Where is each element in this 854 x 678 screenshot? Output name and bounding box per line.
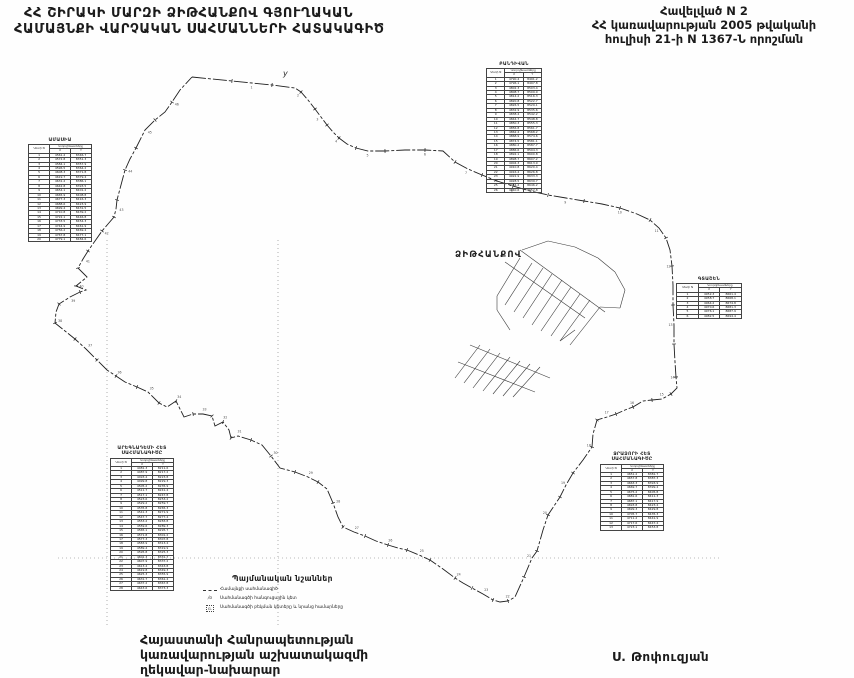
legend-item: /o Սահմանագծի հանգուցային կետ [200, 596, 410, 602]
coord-table: Կետի NԿոորդինատներըXY14952.38661.424958.… [676, 283, 742, 319]
legend-item: G. Սահմանագծի բեկման կետերը և նրանց համա… [200, 605, 410, 612]
svg-text:24: 24 [457, 572, 461, 576]
break-point-symbol: G. [200, 605, 220, 612]
svg-text:27: 27 [355, 526, 359, 530]
coord-table: Կետի NԿոորդինատներըXY14561.28346.724572.… [28, 144, 92, 242]
coord-table-bottom-left: ԱՐԵԳՆԱԴԵՄԻ ՀԵՏ ՍԱՀՄԱՆԱԳԻԾԸԿետի NԿոորդինա… [110, 446, 174, 591]
coord-table-right: ԳՏԱՇԵՆԿետի NԿոորդինատներըXY14952.38661.4… [676, 277, 742, 319]
svg-text:34: 34 [177, 395, 181, 399]
scanned-map-page: ՀՀ ՇԻՐԱԿԻ ՄԱՐԶԻ ՁԻԹՀԱՆՔՈՎ ԳՅՈՒՂԱԿԱՆ ՀԱՄԱ… [0, 0, 854, 678]
svg-text:25: 25 [420, 549, 424, 553]
svg-text:30: 30 [274, 451, 278, 455]
coord-table-bottom-right: ՋՐԱՁՈՐԻ ՀԵՏ ՍԱՀՄԱՆԱԳԻԾԸԿետի NԿոորդինատնե… [600, 452, 664, 531]
coord-table-title: ԱՐԵԳՆԱԴԵՄԻ ՀԵՏ ՍԱՀՄԱՆԱԳԻԾԸ [110, 446, 174, 457]
signer-name: Ս. Թոփուզյան [612, 650, 709, 664]
svg-text:32: 32 [223, 416, 227, 420]
svg-text:33: 33 [202, 408, 206, 412]
svg-text:31: 31 [237, 430, 241, 434]
svg-text:2: 2 [297, 93, 299, 97]
svg-text:13: 13 [669, 323, 673, 327]
svg-text:1: 1 [251, 85, 253, 89]
node-point-symbol: /o [200, 596, 220, 601]
svg-text:7: 7 [465, 171, 467, 175]
signature-line1: Հայաստանի Հանրապետության [140, 632, 368, 647]
svg-text:19: 19 [561, 481, 565, 485]
svg-text:44: 44 [128, 169, 132, 173]
coord-row: 64982.58694.4 [677, 314, 742, 318]
svg-text:5: 5 [367, 153, 369, 157]
legend: Պայմանական նշաններ Համայնքի սահմանագիծ /… [200, 574, 410, 615]
svg-text:46: 46 [175, 103, 179, 107]
svg-text:21: 21 [527, 554, 531, 558]
svg-text:23: 23 [484, 588, 488, 592]
legend-heading: Պայմանական նշաններ [232, 574, 410, 583]
svg-text:9: 9 [564, 200, 566, 204]
coord-row: 134723.18453.8 [601, 526, 664, 530]
svg-text:20: 20 [543, 511, 547, 515]
svg-text:39: 39 [71, 299, 75, 303]
svg-text:41: 41 [86, 259, 90, 263]
coord-table-title: ՋՐԱՁՈՐԻ ՀԵՏ ՍԱՀՄԱՆԱԳԻԾԸ [600, 452, 664, 463]
svg-text:42: 42 [105, 232, 109, 236]
svg-text:4: 4 [335, 139, 337, 143]
svg-text:17: 17 [605, 411, 609, 415]
svg-text:10: 10 [618, 210, 622, 214]
signature-block: Հայաստանի Հանրապետության կառավարության ա… [140, 632, 368, 677]
coord-table-title: ԲԱՆԴԻՎԱՆ [486, 62, 542, 67]
legend-item: Համայնքի սահմանագիծ [200, 587, 410, 593]
svg-text:36: 36 [117, 370, 121, 374]
coord-table-title: ԱՄԱՍԻԱ [28, 138, 92, 143]
svg-text:43: 43 [119, 208, 123, 212]
signature-line3: ղեկավար-նախարար [140, 662, 368, 677]
coord-row: 284643.68373.3 [111, 586, 174, 590]
svg-text:28: 28 [336, 499, 340, 503]
signature-line2: կառավարության աշխատակազմի [140, 647, 368, 662]
svg-text:6: 6 [424, 152, 426, 156]
coord-table: Կետի NԿոորդինատներըXY14790.48491.224796.… [486, 68, 542, 193]
village-label: ՁԻԹՀԱՆՔՈՎ [455, 250, 522, 260]
svg-text:3: 3 [316, 118, 318, 122]
coord-table-title: ԳՏԱՇԵՆ [676, 277, 742, 282]
legend-item-label: Սահմանագծի բեկման կետերը և նրանց համարնե… [220, 605, 343, 611]
svg-text:22: 22 [506, 595, 510, 599]
boundary-line-symbol [200, 587, 220, 593]
svg-text:11: 11 [655, 229, 659, 233]
svg-text:18: 18 [587, 443, 591, 447]
legend-item-label: Համայնքի սահմանագիծ [220, 587, 278, 593]
svg-text:38: 38 [58, 319, 62, 323]
svg-text:12: 12 [667, 264, 671, 268]
coord-table: Կետի NԿոորդինատներըXY14481.38211.624487.… [110, 458, 174, 592]
flag-mark: y [282, 69, 288, 78]
coord-table-top-center: ԲԱՆԴԻՎԱՆԿետի NԿոորդինատներըXY14790.48491… [486, 62, 542, 193]
svg-text:26: 26 [388, 539, 392, 543]
svg-text:29: 29 [309, 471, 313, 475]
coord-table: Կետի NԿոորդինատներըXY14651.28381.724657.… [600, 464, 664, 531]
coord-row: 204779.18484.6 [29, 238, 92, 242]
svg-text:14: 14 [671, 375, 675, 379]
svg-text:15: 15 [660, 393, 664, 397]
settlement-cluster [455, 241, 625, 397]
coord-row: 264940.68652.8 [487, 188, 542, 192]
svg-text:37: 37 [88, 344, 92, 348]
svg-text:40: 40 [79, 284, 83, 288]
svg-text:35: 35 [150, 386, 154, 390]
svg-text:16: 16 [630, 401, 634, 405]
coord-table-top-left: ԱՄԱՍԻԱԿետի NԿոորդինատներըXY14561.28346.7… [28, 138, 92, 242]
legend-item-label: Սահմանագծի հանգուցային կետ [220, 596, 297, 602]
svg-text:45: 45 [148, 131, 152, 135]
